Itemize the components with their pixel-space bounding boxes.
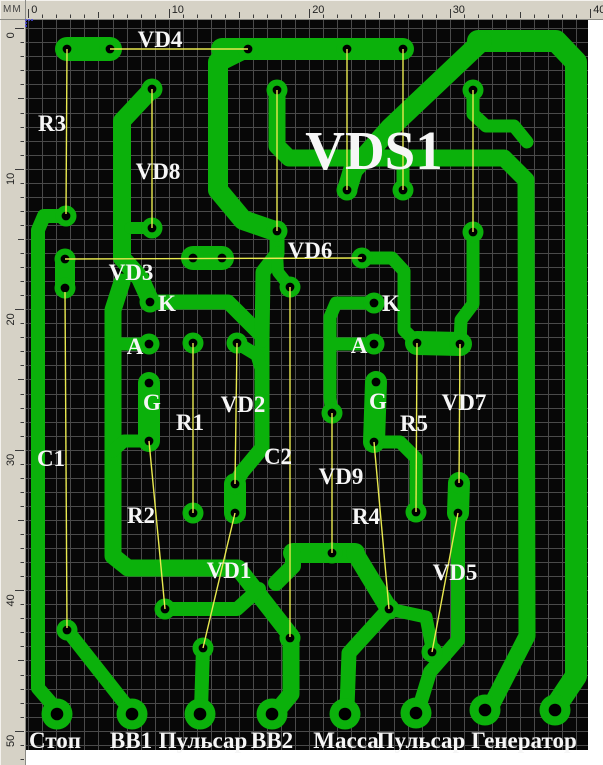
component-label: VD9: [319, 464, 364, 489]
component-label: VD8: [136, 159, 181, 184]
pad-hole: [370, 340, 379, 349]
pad-hole: [61, 284, 70, 293]
pad-hole: [145, 379, 154, 388]
component-label: R5: [400, 411, 428, 436]
component-label: A: [351, 333, 368, 358]
ruler-number: 0: [5, 32, 17, 38]
component-label: R1: [176, 410, 204, 435]
connector-label: Генератор: [471, 728, 577, 753]
component-label: VD7: [442, 390, 487, 415]
component-label: R3: [38, 111, 66, 136]
connector-pad-hole: [194, 708, 207, 721]
component-label: G: [143, 390, 161, 415]
ruler-number: 50: [5, 735, 17, 747]
component-label: K: [158, 291, 176, 316]
ruler-number: 20: [312, 4, 324, 16]
ruler-number: 20: [5, 313, 17, 325]
ratsnest-line: [66, 49, 67, 214]
connector-label: Масса: [313, 728, 379, 753]
connector-pad-hole: [549, 704, 562, 717]
ruler-number: 40: [5, 594, 17, 606]
component-label: VD4: [138, 27, 183, 52]
ruler-number: 10: [5, 173, 17, 185]
component-label: VD1: [207, 558, 252, 583]
pcb-editor-window: MM VD4R3VD8VD3VD6KKAAGGR1VD2R5VD7C1C2VD9…: [0, 0, 603, 765]
connector-pad-hole: [410, 707, 423, 720]
pad-hole: [372, 378, 381, 387]
connector-pad-hole: [126, 708, 139, 721]
connector-label: BB1: [110, 728, 152, 753]
component-label: G: [369, 389, 387, 414]
ruler-number: 10: [172, 4, 184, 16]
ruler-unit-label: MM: [3, 4, 25, 18]
pad-hole: [145, 340, 154, 349]
component-label: VD5: [433, 560, 478, 585]
connector-label: Пульсар: [159, 728, 248, 753]
left-ruler: [0, 0, 26, 765]
component-label: VD2: [221, 392, 266, 417]
connector-pad-hole: [339, 708, 352, 721]
component-label: A: [127, 334, 144, 359]
pad-hole: [370, 299, 379, 308]
component-label: C1: [37, 446, 65, 471]
component-label: R2: [127, 503, 155, 528]
board-area[interactable]: VD4R3VD8VD3VD6KKAAGGR1VD2R5VD7C1C2VD9R2R…: [26, 20, 588, 753]
board-title: VDS1: [305, 120, 443, 181]
component-label: VD3: [109, 260, 154, 285]
component-label: C2: [264, 444, 292, 469]
connector-label: Пульсар: [377, 728, 466, 753]
component-label: K: [382, 291, 400, 316]
component-label: VD6: [288, 238, 333, 263]
connector-pad-hole: [266, 708, 279, 721]
pad-hole: [146, 298, 155, 307]
ruler-number: 30: [5, 454, 17, 466]
connector-pad-hole: [51, 708, 64, 721]
ruler-number: 40: [593, 4, 603, 16]
component-label: R4: [352, 504, 381, 529]
connector-label: BB2: [251, 728, 293, 753]
connector-pad-hole: [479, 704, 492, 717]
connector-label: Стоп: [29, 728, 81, 753]
ruler-number: 0: [31, 4, 37, 16]
pcb-canvas[interactable]: VD4R3VD8VD3VD6KKAAGGR1VD2R5VD7C1C2VD9R2R…: [0, 0, 603, 765]
top-ruler: [0, 0, 603, 20]
ruler-number: 30: [453, 4, 465, 16]
